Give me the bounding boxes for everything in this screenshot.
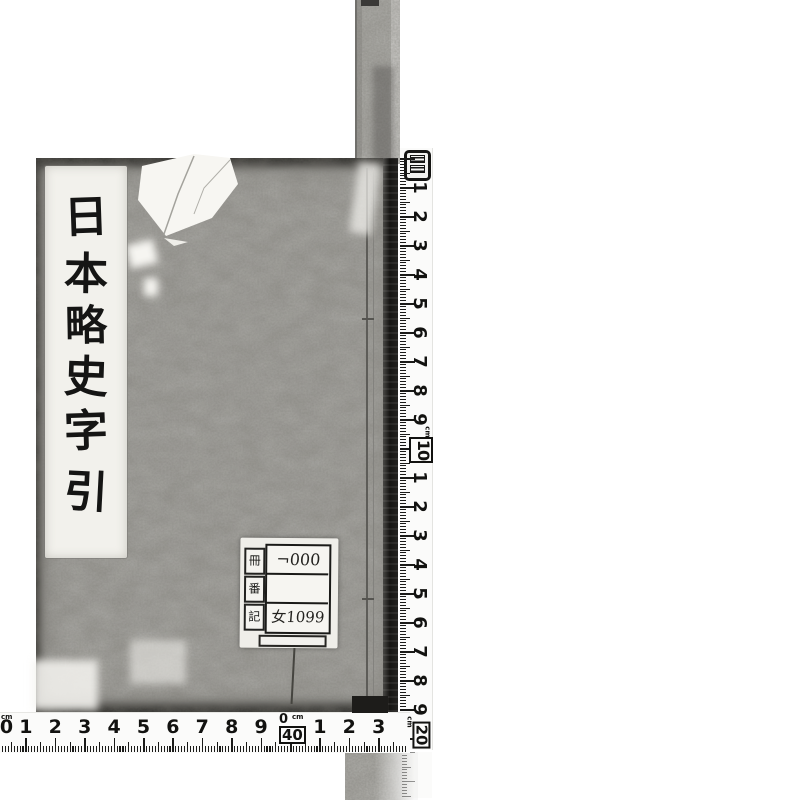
ruler-tick [340,746,341,752]
ruler-tick [400,532,406,533]
ruler-tick [96,746,97,752]
ruler-tick [400,338,406,339]
ruler-tick [400,471,406,472]
ruler-tick [400,645,406,646]
ruler-tick [261,738,263,752]
ruler-number-20: 20 [412,722,430,749]
ruler-tick [400,349,406,350]
ruler-tick [400,442,406,443]
ruler-tick [400,242,406,243]
ruler-tick [400,265,406,266]
ruler-tick [400,239,406,240]
ruler-tick [390,746,391,752]
ruler-tick [249,746,250,752]
ruler-tick-faint [402,787,407,788]
ruler-tick [400,584,406,585]
ruler-tick [400,468,406,469]
ruler-tick [219,746,220,752]
ruler-tick [211,746,212,752]
ruler-tick [105,746,106,752]
ruler-tick [55,738,57,752]
ruler-tick [358,746,359,752]
ruler-tick [322,746,323,752]
ruler-number: 4 [103,716,125,738]
ruler-tick [400,474,406,475]
ruler-tick [400,660,406,661]
ruler-tick [275,742,276,752]
ruler-tick [37,746,38,752]
ruler-tick [400,283,406,284]
ruler-tick [400,425,406,426]
ruler-number: 8 [409,669,429,691]
ruler-tick [400,280,406,281]
ruler-number: 2 [409,495,429,517]
ruler-tick [400,706,406,707]
horizontal-ruler: cm0123456789cm040123 [0,712,410,753]
ruler-tick [137,746,138,752]
ruler-tick [155,746,156,752]
ruler-tick [400,323,406,324]
ruler-tick [114,738,116,752]
ruler-tick [400,700,406,701]
ruler-tick [108,746,109,752]
ruler-tick [234,746,235,752]
ruler-tick [81,746,82,752]
book-spine-edge [383,158,398,712]
ruler-tick [400,602,406,603]
ruler-tick [400,671,406,672]
ruler-tick-faint [402,790,407,791]
ruler-tick [299,746,300,752]
ruler-tick [400,677,406,678]
ruler-tick [240,746,241,752]
ruler-tick [264,746,265,752]
ruler-number: 1 [308,716,330,738]
ruler-tick [225,746,226,752]
ruler-tick [237,746,238,752]
ruler-tick [372,746,373,752]
ruler-tick [278,746,279,752]
ruler-tick [228,746,229,752]
ruler-tick [34,746,35,752]
ruler-tick [400,500,406,501]
ruler-tick [400,642,406,643]
label-field: 記 [244,604,265,631]
ruler-tick [400,436,406,437]
ruler-tick [400,654,406,655]
ruler-tick [400,407,406,408]
ruler-tick [400,329,406,330]
ruler-tick [400,352,406,353]
ruler-tick [400,257,406,258]
ruler-tick-faint [402,767,411,768]
ruler-tick [400,207,406,208]
ruler-tick [190,746,191,752]
worn-spot [144,278,158,296]
ruler-tick [352,746,353,752]
ruler-tick [400,526,406,527]
emblem-hatch [410,165,425,173]
ruler-tick [231,738,233,752]
ruler-tick [400,509,406,510]
ruler-tick [400,233,406,234]
ruler-tick [402,746,403,752]
ruler-tick [2,746,3,752]
ruler-tick [400,439,406,440]
ruler-tick [400,381,406,382]
ruler-number: 2 [409,205,429,227]
ruler-tick [400,445,406,446]
ruler-tick [400,204,406,205]
label-field: 番 [244,576,265,603]
ruler-tick [400,236,406,237]
ruler-tick [281,746,282,752]
library-label: 冊 番 記 ¬000 女1099 [240,538,339,649]
ruler-tick [384,746,385,752]
ruler-number: 10 [409,437,433,463]
ruler-tick [400,634,406,635]
ruler-tick [400,515,406,516]
ruler-tick [400,225,406,226]
ruler-tick-faint [402,764,407,765]
book-cover: 日 本 略 史 字 引 冊 番 記 ¬000 女1099 [36,158,398,712]
ruler-tick [296,746,297,752]
binding-thread [366,168,374,704]
title-char: 本 [45,250,128,299]
ruler-tick [400,521,410,522]
ruler-tick [72,746,73,752]
ruler-tick [400,605,406,606]
ruler-tick-faint [402,796,411,797]
ruler-tick [378,738,380,752]
ruler-tick [400,689,406,690]
ruler-tick [67,746,68,752]
ruler-number: 7 [191,716,213,738]
ruler-tick [400,561,406,562]
ruler-tick [399,746,400,752]
ruler-tick-faint [402,793,407,794]
ruler-tick [93,746,94,752]
ruler-tick [111,746,112,752]
ruler-tick [400,616,406,617]
ruler-tick [316,746,317,752]
ruler-tick-faint [402,784,407,785]
ruler-tick [152,746,153,752]
ruler-tick [122,746,123,752]
ruler-tick [400,315,406,316]
ruler-tick [5,746,6,752]
ruler-tick [400,590,406,591]
ruler-tick [131,746,132,752]
ruler-tick [11,742,12,752]
ruler-tick [400,286,406,287]
ruler-tick [61,746,62,752]
ruler-tick [400,410,406,411]
title-char: 史 [44,353,128,404]
ruler-tick [167,746,168,752]
ruler-tick [400,344,406,345]
ruler-tick [400,405,410,406]
ruler-tick [400,674,406,675]
ruler-tick [400,384,406,385]
ruler-tick [337,746,338,752]
ruler-tick [400,489,406,490]
ruler-tick [400,260,410,261]
ruler-tick [400,581,406,582]
ruler-number: 4 [409,263,429,285]
ruler-tick [334,742,335,752]
torn-paper-patch [134,154,242,246]
ruler-number: 3 [73,716,95,738]
ruler-tick [205,746,206,752]
ruler-tick [17,746,18,752]
ruler-tick [102,746,103,752]
ruler-tick [302,746,303,752]
ruler-tick-faint [402,781,415,782]
ruler-tick [78,746,79,752]
vertical-ruler-faint-continuation [402,752,432,798]
ruler-tick [349,738,351,752]
ruler-tick [400,231,410,232]
ruler-tick [400,158,415,160]
ruler-tick [400,291,406,292]
ruler-tick [400,637,410,638]
ruler-tick [400,608,410,609]
title-char: 日 [44,193,128,244]
ruler-tick [400,648,406,649]
ruler-tick [400,544,406,545]
label-field: 冊 [244,548,265,575]
ruler-tick [400,289,410,290]
ruler-tick [400,460,406,461]
title-char: 略 [45,301,128,350]
vertical-ruler: 12345678910cm123456789 [400,148,433,750]
label-row: ¬000 [266,546,330,576]
strip-top-mark [361,0,379,6]
ruler-tick [178,746,179,752]
ruler-tick [222,746,223,752]
ruler-tick [400,306,406,307]
ruler-tick [400,355,406,356]
ruler-tick [87,746,88,752]
ruler-tick [400,547,406,548]
ruler-tick [400,523,406,524]
ruler-tick [70,742,71,752]
ruler-tick [400,184,406,185]
ruler-tick [400,248,406,249]
ruler-tick [400,486,406,487]
ruler-tick [400,573,406,574]
ruler-tick [400,503,406,504]
ruler-tick [375,746,376,752]
ruler-tick [400,387,406,388]
ruler-tick [400,175,406,176]
ruler-tick [75,746,76,752]
ruler-number: 7 [409,350,429,372]
scan-canvas: 日 本 略 史 字 引 冊 番 記 ¬000 女1099 123456 [0,0,800,800]
ruler-tick [400,666,410,667]
title-char: 引 [44,467,128,519]
ruler-tick [52,746,53,752]
ruler-tick [400,454,406,455]
ruler-tick [400,538,406,539]
ruler-number: 3 [409,524,429,546]
ruler-tick [400,364,406,365]
ruler-tick [143,738,145,752]
ruler-tick [25,738,27,752]
ruler-tick [28,746,29,752]
ruler-tick [400,552,406,553]
ruler-tick [346,746,347,752]
ruler-tick [284,746,285,752]
ruler-tick [43,746,44,752]
ruler-tick [400,692,406,693]
ruler-tick [311,746,312,752]
ruler-tick [146,746,147,752]
ruler-tick [364,742,365,752]
ruler-tick [184,746,185,752]
ruler-tick [400,254,406,255]
ruler-tick [246,742,247,752]
ruler-tick [269,746,270,752]
ruler-tick [172,738,174,752]
ruler-tick [169,746,170,752]
ruler-tick [400,434,410,435]
ruler-tick [400,663,406,664]
ruler-tick [208,746,209,752]
ruler-tick [400,555,406,556]
ruler-number: 8 [409,379,429,401]
ruler-number: 6 [409,611,429,633]
ruler-tick [400,494,406,495]
ruler-tick [400,251,406,252]
ruler-tick-faint [402,769,407,770]
ruler-tick [400,492,410,493]
ruler-tick [400,576,406,577]
ruler-tick [400,213,406,214]
ruler-tick [400,625,406,626]
ruler-tick [400,668,406,669]
ruler-tick [164,746,165,752]
ruler-tick [400,167,406,168]
ruler-tick [202,738,204,752]
ruler-tick [325,746,326,752]
ruler-tick [400,294,406,295]
ruler-tick [400,613,406,614]
ruler-tick [58,746,59,752]
worn-spot-bottom-left [32,660,98,710]
ruler-tick [369,746,370,752]
ruler-tick [400,399,406,400]
ruler-tick [400,341,406,342]
ruler-tick [400,413,406,414]
ruler-tick [400,422,406,423]
ruler-number: 5 [409,292,429,314]
ruler-tick [400,297,406,298]
ruler-tick [400,558,406,559]
ruler-tick-faint [402,778,407,779]
ruler-tick [400,193,406,194]
ruler-tick [400,219,406,220]
ruler-tick [400,196,406,197]
ruler-tick [400,312,406,313]
ruler-number: 5 [409,582,429,604]
ruler-number-small: 0 [272,712,294,727]
ruler-tick [287,746,288,752]
ruler-tick [119,746,120,752]
ruler-tick [31,746,32,752]
ruler-tick [400,628,406,629]
ruler-tick [400,277,406,278]
ruler-number: 1 [409,466,429,488]
ruler-tick [381,746,382,752]
ruler-tick [400,529,406,530]
ruler-tick [400,318,410,319]
ruler-tick [400,347,410,348]
ruler-tick [400,210,406,211]
ruler-tick [400,393,406,394]
ruler-tick [400,271,406,272]
ruler-tick [214,746,215,752]
ruler-number: 1 [14,716,36,738]
ruler-tick [400,268,406,269]
ruler-number: 2 [338,716,360,738]
ruler-tick [400,596,406,597]
ruler-tick [400,199,406,200]
ruler-tick [128,742,129,752]
ruler-tick [331,746,332,752]
binding-stitch [362,598,374,600]
ruler-number: 7 [409,640,429,662]
ruler-tick [140,746,141,752]
ruler-tick [400,431,406,432]
ruler-tick [400,164,406,165]
ruler-tick [400,465,406,466]
label-bottom-bar [259,635,327,648]
ruler-tick [400,376,410,377]
ruler-tick [400,190,406,191]
strip-shadow-blotch [373,66,393,162]
ruler-tick [99,742,100,752]
ruler-tick [400,300,406,301]
ruler-tick [400,579,410,580]
ruler-tick [400,541,406,542]
ruler-tick [400,309,406,310]
ruler-tick [400,518,406,519]
ruler-tick [84,738,86,752]
ruler-tick [400,639,406,640]
ruler-tick [400,610,406,611]
ruler-tick [20,746,21,752]
binding-stitch [362,318,374,320]
ruler-tick [400,480,406,481]
ruler-tick [243,746,244,752]
ruler-tick [400,697,406,698]
ruler-tick [393,742,394,752]
ruler-tick [158,742,159,752]
ruler-tick [400,202,410,203]
ruler-tick [161,746,162,752]
ruler-tick [149,746,150,752]
ruler-tick [199,746,200,752]
ruler-tick [217,742,218,752]
title-slip: 日 本 略 史 字 引 [45,166,127,558]
ruler-tick [400,335,406,336]
ruler-tick [319,738,321,752]
ruler-tick [117,746,118,752]
ruler-number: 3 [367,716,389,738]
ruler-tick [366,746,367,752]
